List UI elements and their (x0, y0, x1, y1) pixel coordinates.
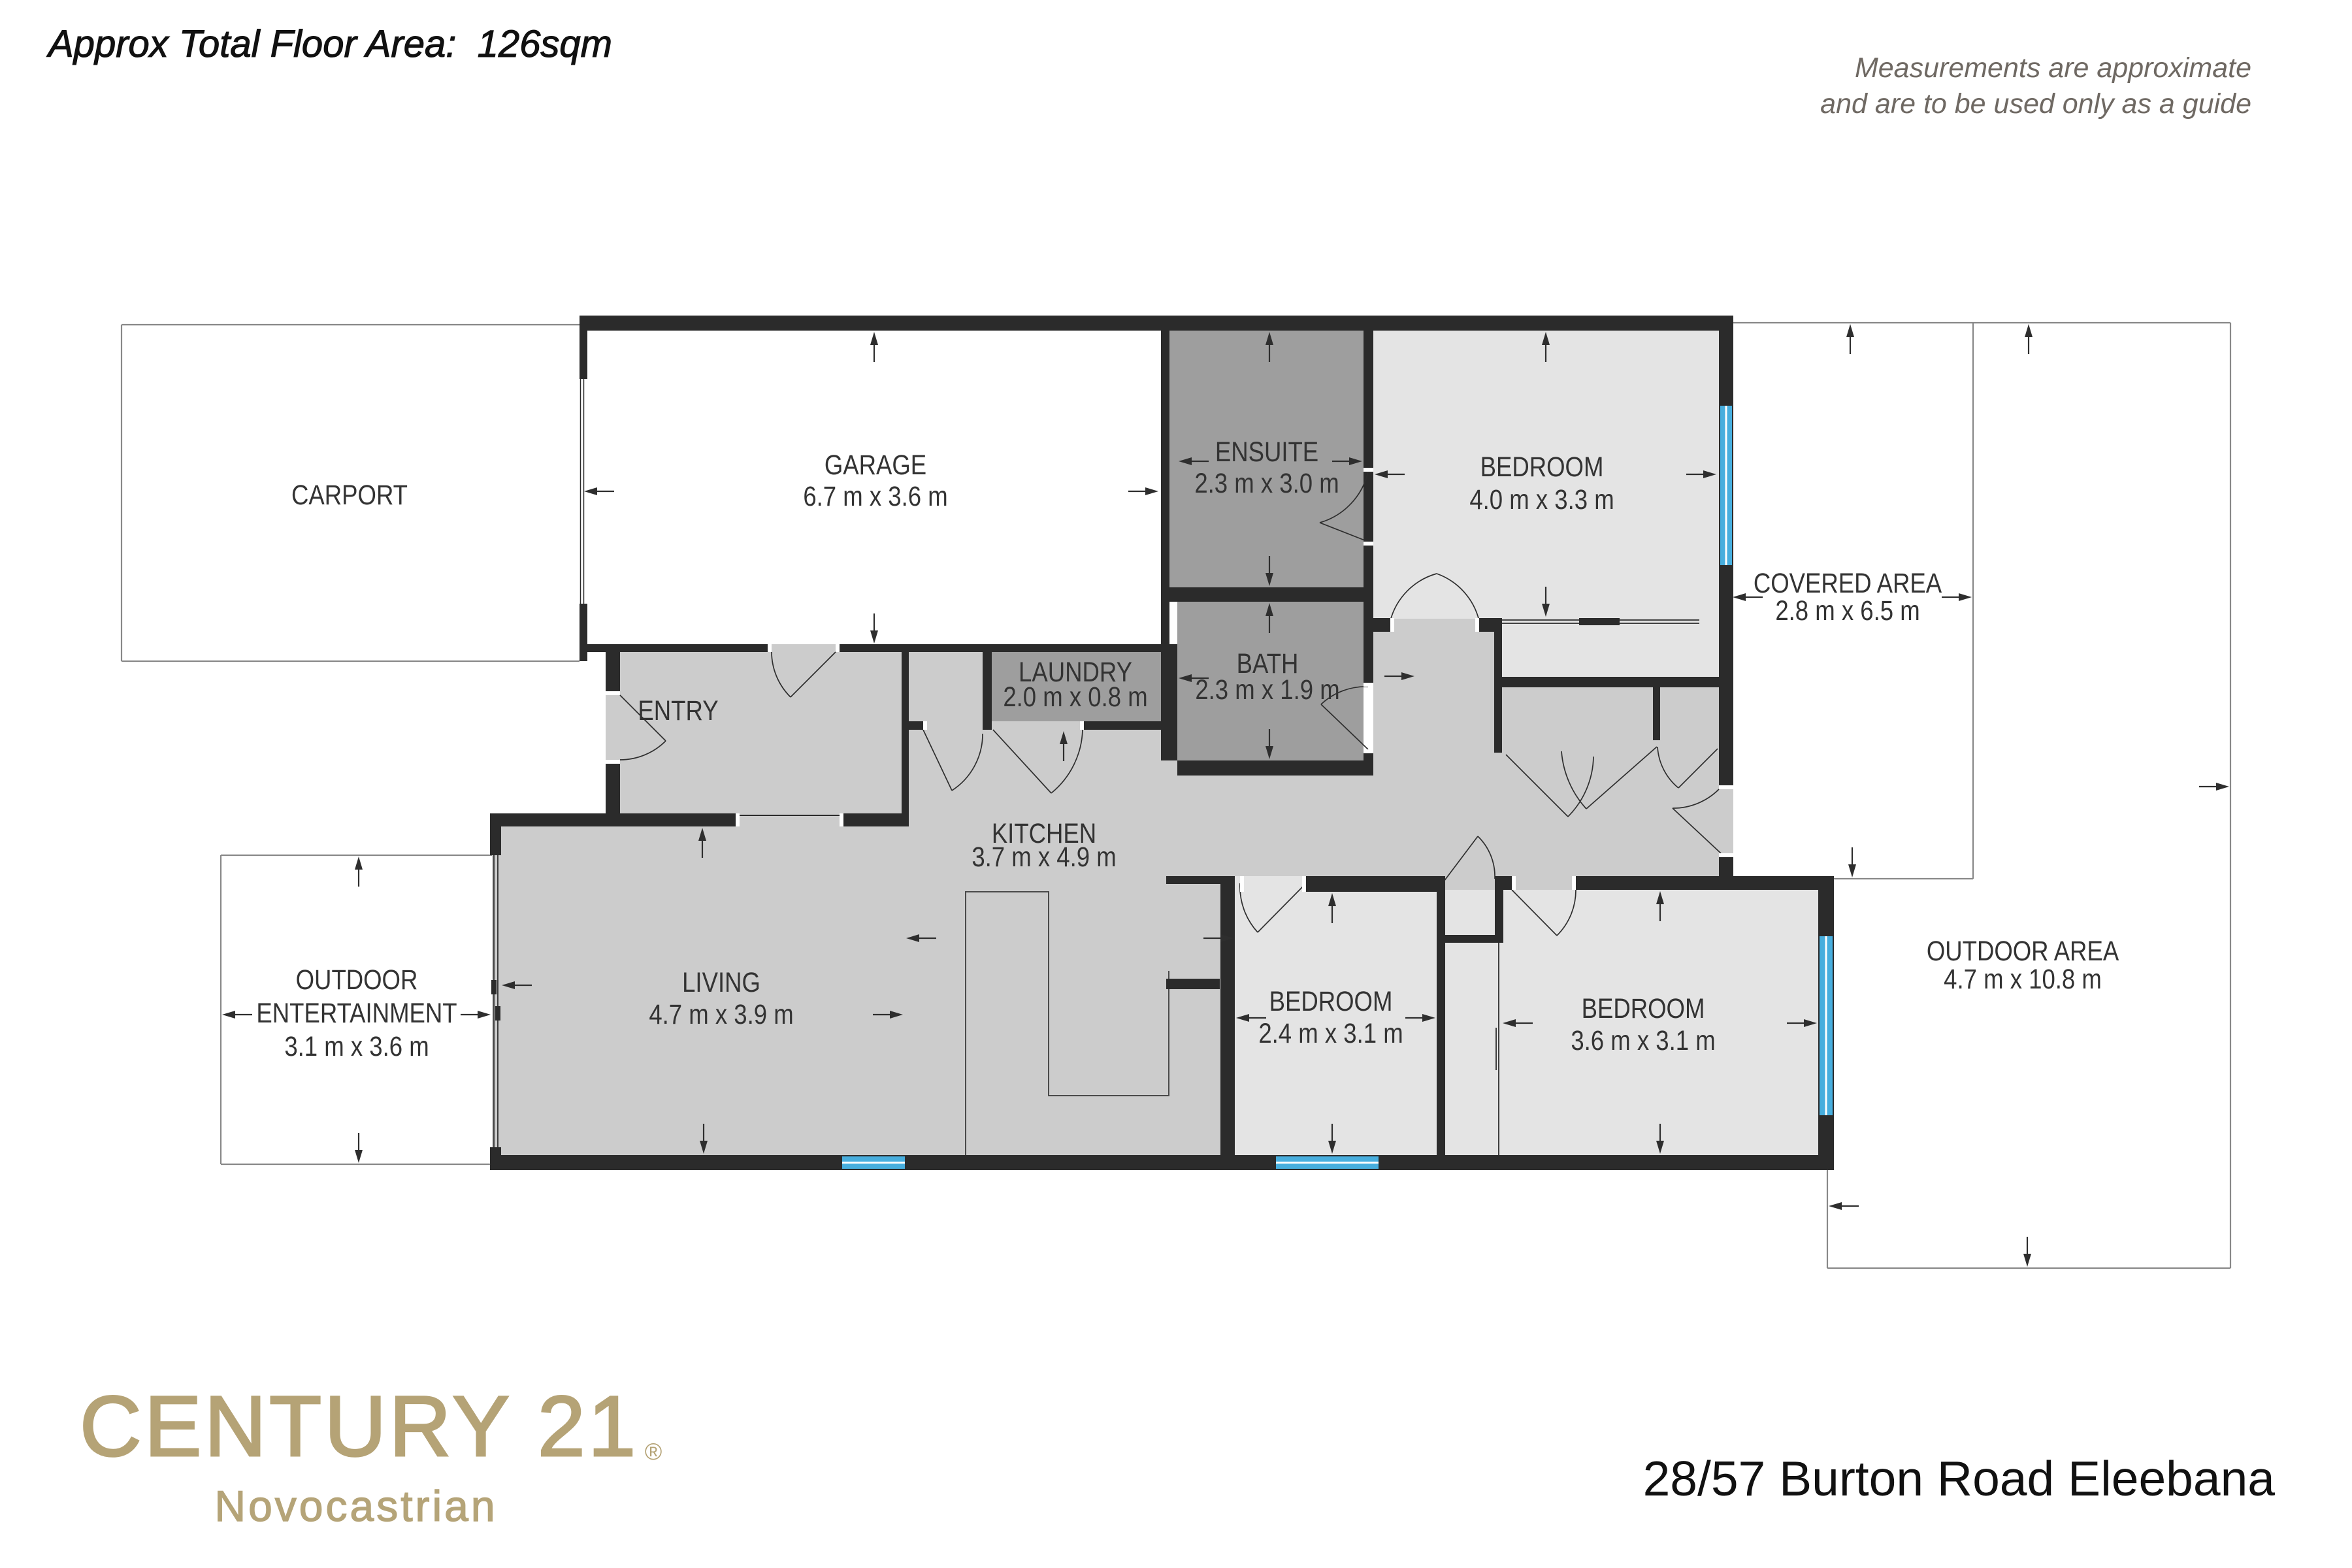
svg-text:Measurements are approximate: Measurements are approximate (1855, 52, 2251, 84)
svg-text:3.7 m x 4.9 m: 3.7 m x 4.9 m (972, 841, 1116, 872)
svg-text:2.3 m x 1.9 m: 2.3 m x 1.9 m (1195, 674, 1339, 705)
svg-text:2.8 m x 6.5 m: 2.8 m x 6.5 m (1775, 595, 1919, 626)
svg-text:GARAGE: GARAGE (825, 449, 926, 480)
svg-text:BEDROOM: BEDROOM (1582, 993, 1705, 1024)
svg-text:4.7 m x 10.8 m: 4.7 m x 10.8 m (1944, 964, 2102, 994)
svg-text:CARPORT: CARPORT (291, 480, 408, 510)
svg-text:Novocastrian: Novocastrian (214, 1482, 497, 1530)
svg-text:COVERED AREA: COVERED AREA (1754, 568, 1942, 598)
svg-text:ENSUITE: ENSUITE (1215, 436, 1318, 467)
svg-text:OUTDOOR: OUTDOOR (296, 964, 418, 995)
svg-text:2.4 m x 3.1 m: 2.4 m x 3.1 m (1258, 1018, 1403, 1049)
svg-text:®: ® (645, 1438, 662, 1465)
svg-text:Approx Total Floor Area: 126s: Approx Total Floor Area: 126sqm (46, 23, 612, 65)
svg-text:ENTRY: ENTRY (638, 695, 718, 726)
svg-text:CENTURY 21: CENTURY 21 (80, 1378, 639, 1474)
svg-text:LIVING: LIVING (682, 967, 760, 998)
svg-text:4.7 m x 3.9 m: 4.7 m x 3.9 m (649, 999, 793, 1030)
svg-text:2.0 m x 0.8 m: 2.0 m x 0.8 m (1003, 681, 1147, 712)
svg-text:ENTERTAINMENT: ENTERTAINMENT (256, 998, 457, 1028)
svg-text:OUTDOOR AREA: OUTDOOR AREA (1927, 936, 2119, 966)
svg-text:and are to be used only as a g: and are to be used only as a guide (1820, 88, 2251, 120)
svg-text:3.6 m x 3.1 m: 3.6 m x 3.1 m (1571, 1025, 1715, 1056)
svg-text:4.0 m x 3.3 m: 4.0 m x 3.3 m (1469, 484, 1614, 515)
svg-text:2.3 m x 3.0 m: 2.3 m x 3.0 m (1194, 468, 1339, 498)
svg-text:6.7 m x 3.6 m: 6.7 m x 3.6 m (803, 481, 947, 512)
svg-text:28/57 Burton Road Eleebana: 28/57 Burton Road Eleebana (1643, 1451, 2276, 1506)
svg-text:BEDROOM: BEDROOM (1269, 986, 1393, 1017)
svg-text:BEDROOM: BEDROOM (1480, 451, 1604, 482)
svg-text:3.1 m x 3.6 m: 3.1 m x 3.6 m (284, 1031, 429, 1062)
